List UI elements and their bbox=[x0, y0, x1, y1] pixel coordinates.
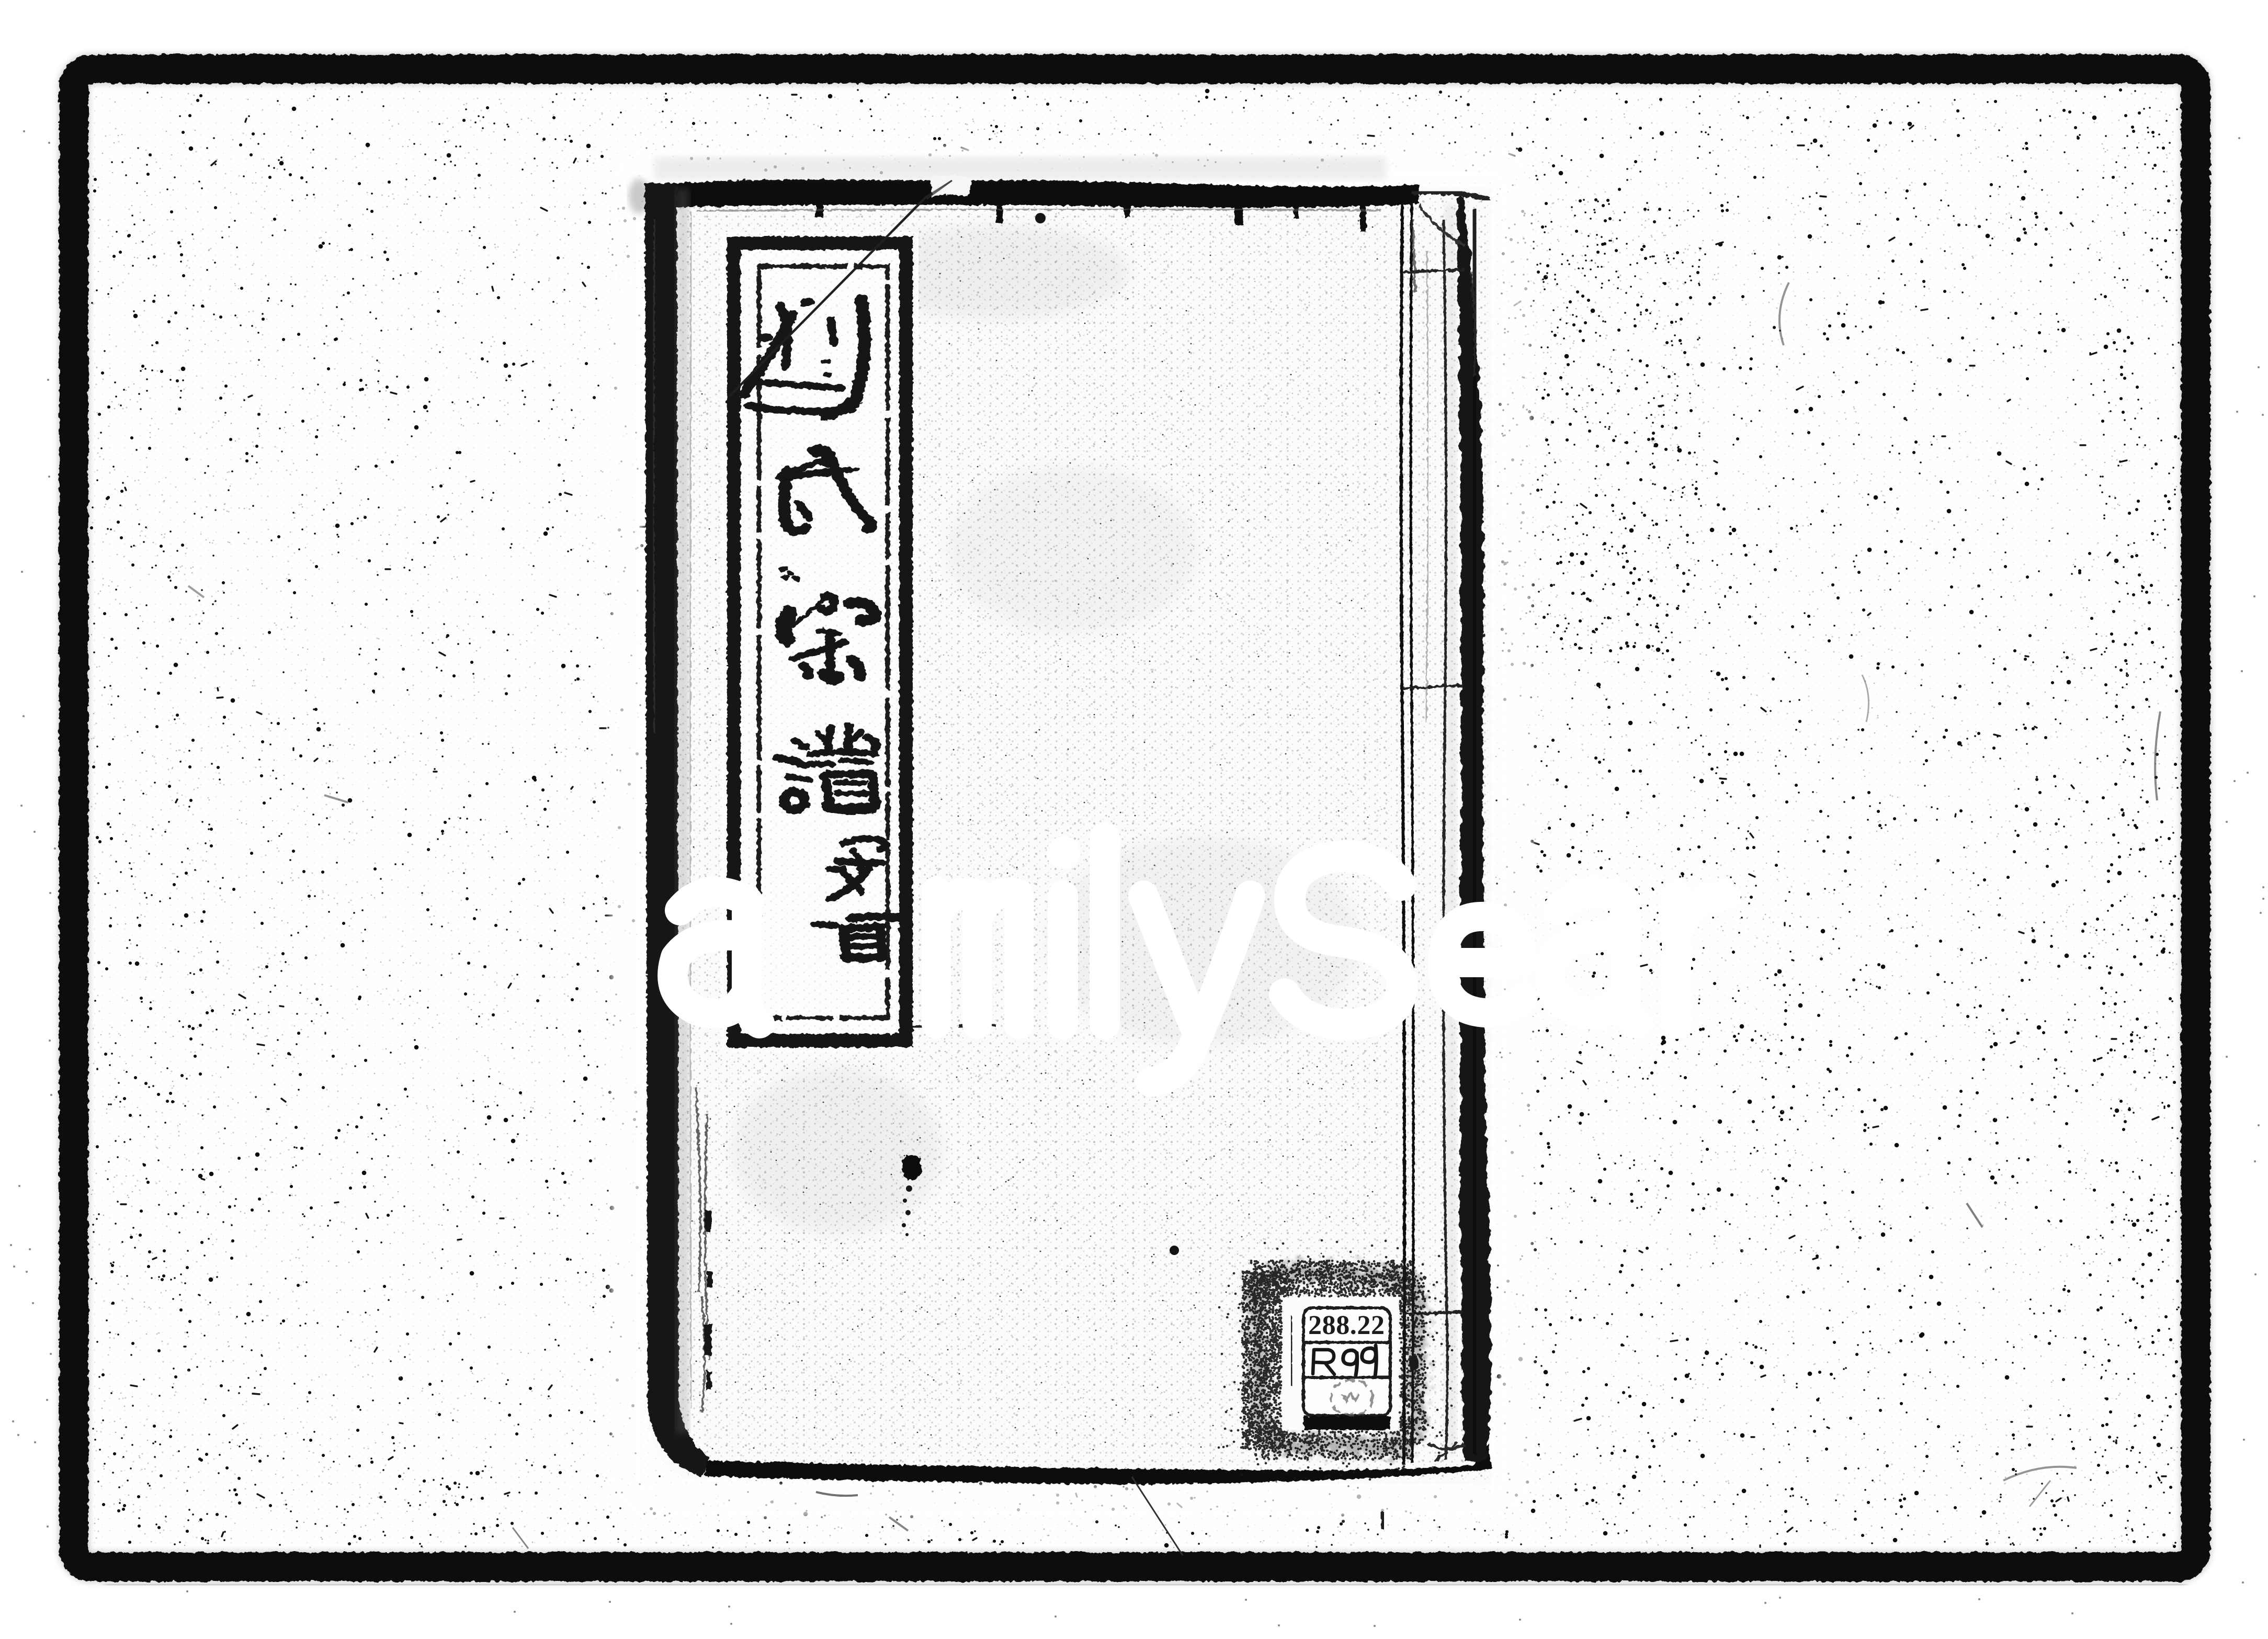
svg-text:288.22: 288.22 bbox=[1308, 1310, 1385, 1340]
